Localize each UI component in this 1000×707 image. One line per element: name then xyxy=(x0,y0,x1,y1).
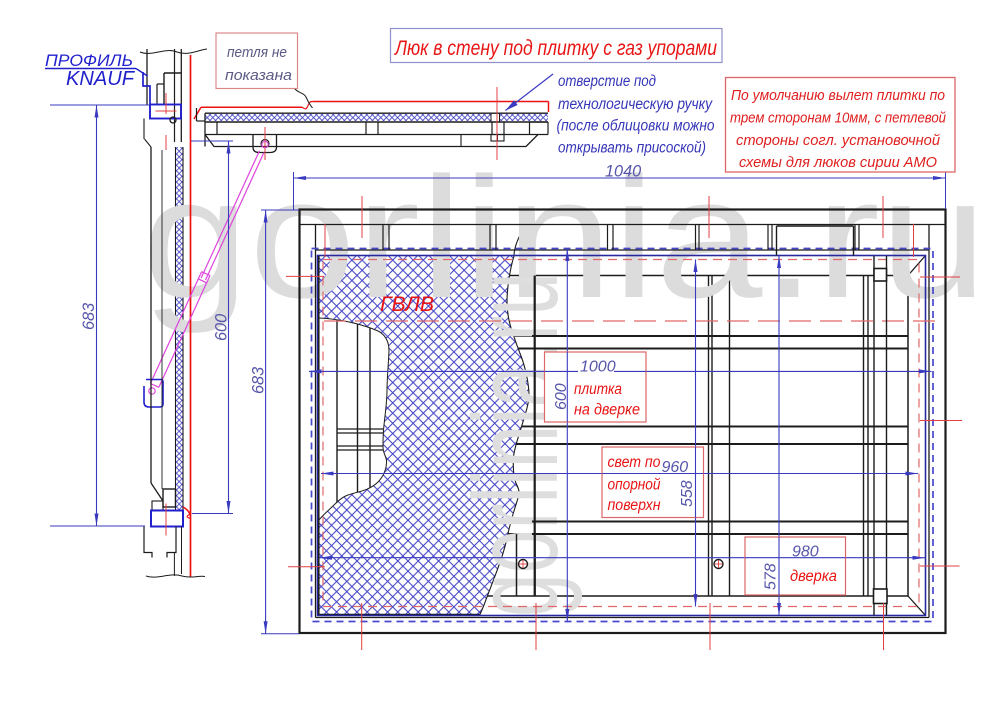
svg-text:схемы для люков сирии АМО: схемы для люков сирии АМО xyxy=(739,154,937,171)
svg-text:опорной: опорной xyxy=(608,477,661,494)
svg-text:открывать присоской): открывать присоской) xyxy=(558,140,706,157)
svg-text:(после облицовки можно: (после облицовки можно xyxy=(557,118,715,135)
svg-text:показана: показана xyxy=(225,67,292,84)
svg-text:петля не: петля не xyxy=(227,44,287,61)
svg-text:свет по: свет по xyxy=(608,454,661,471)
svg-text:трем сторонам 10мм, с петлевой: трем сторонам 10мм, с петлевой xyxy=(730,110,946,127)
svg-text:578: 578 xyxy=(763,563,780,590)
svg-text:стороны согл. установочной: стороны согл. установочной xyxy=(736,132,941,149)
svg-text:отверстие под: отверстие под xyxy=(558,73,656,90)
svg-text:600: 600 xyxy=(213,314,231,341)
svg-text:дверка: дверка xyxy=(790,568,837,585)
svg-text:на дверке: на дверке xyxy=(574,402,640,419)
svg-text:ГВЛВ: ГВЛВ xyxy=(380,293,434,316)
svg-text:технологическую ручку: технологическую ручку xyxy=(558,96,713,113)
svg-text:683: 683 xyxy=(250,367,268,394)
svg-text:плитка: плитка xyxy=(574,381,622,398)
svg-text:По умолчанию вылет плитки по: По умолчанию вылет плитки по xyxy=(731,87,945,104)
svg-text:1040: 1040 xyxy=(605,163,641,181)
svg-text:поверхн: поверхн xyxy=(608,497,661,514)
svg-text:KNAUF: KNAUF xyxy=(66,68,136,90)
svg-text:558: 558 xyxy=(679,480,696,507)
svg-text:1000: 1000 xyxy=(580,359,616,376)
svg-text:683: 683 xyxy=(80,303,98,330)
svg-text:Люк в стену под плитку с газ у: Люк в стену под плитку с газ упорами xyxy=(393,37,717,60)
